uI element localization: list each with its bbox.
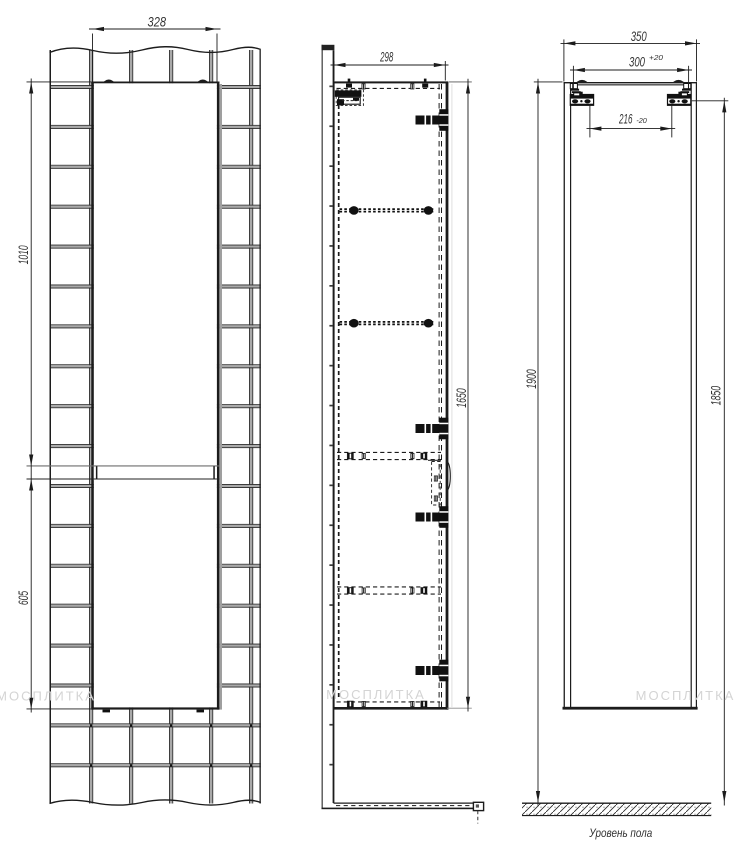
svg-text:298: 298 (380, 50, 394, 65)
svg-text:216: 216 (618, 112, 632, 127)
svg-text:МОСПЛИТКА: МОСПЛИТКА (0, 689, 96, 704)
svg-text:1010: 1010 (16, 245, 31, 264)
svg-text:350: 350 (631, 29, 647, 44)
svg-text:Уровень пола: Уровень пола (588, 828, 652, 840)
svg-text:МОСПЛИТКА: МОСПЛИТКА (326, 687, 426, 702)
svg-text:1650: 1650 (454, 388, 469, 408)
svg-text:300: 300 (629, 54, 645, 69)
svg-text:+20: +20 (649, 53, 664, 62)
svg-text:1900: 1900 (524, 369, 539, 389)
svg-text:-20: -20 (636, 116, 647, 125)
svg-text:328: 328 (148, 15, 167, 30)
svg-text:МОСПЛИТКА: МОСПЛИТКА (636, 688, 736, 703)
svg-text:605: 605 (16, 591, 31, 606)
svg-text:1850: 1850 (709, 386, 724, 406)
